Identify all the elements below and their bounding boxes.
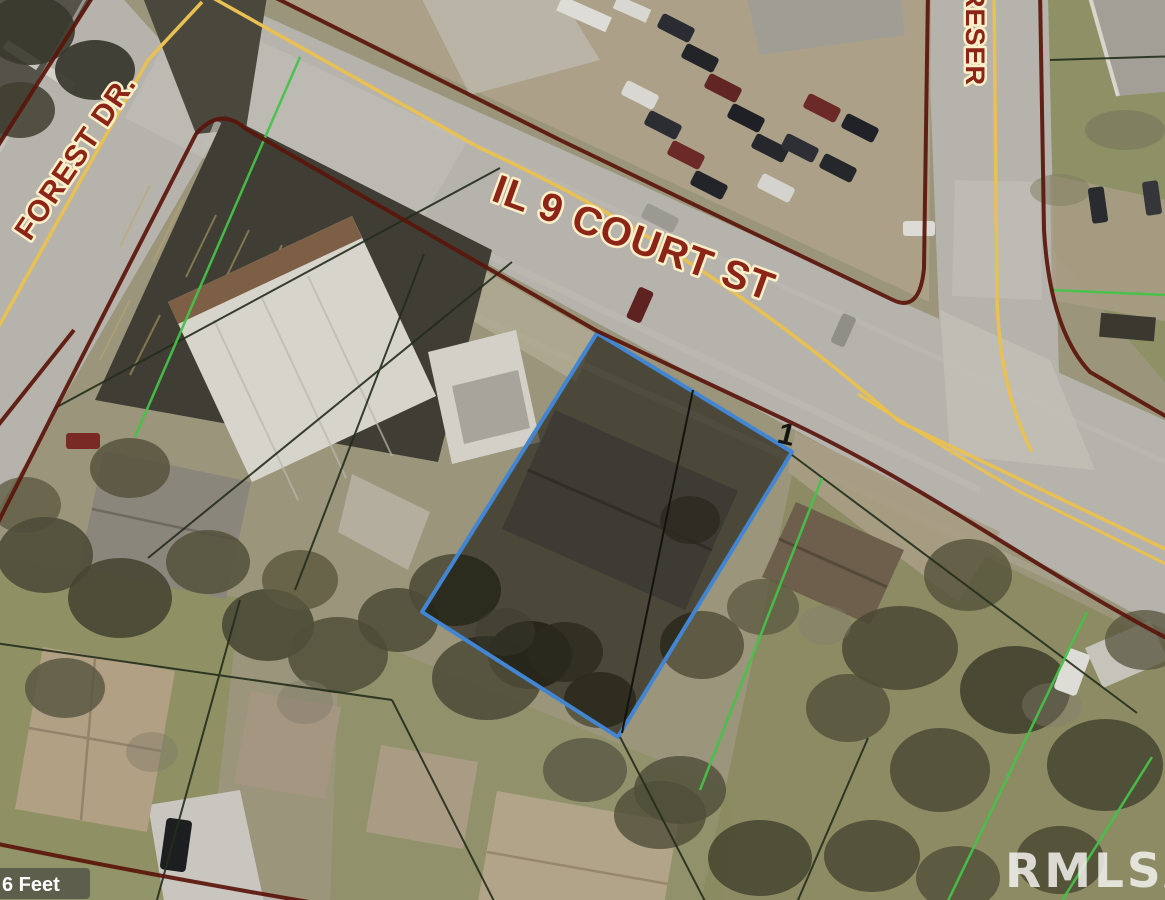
mls-watermark: RMLSA (1005, 844, 1165, 899)
aerial-map-view[interactable]: FOREST DR. IL 9 COURT ST RESER 1 6 Feet … (0, 0, 1165, 900)
scale-indicator: 6 Feet (0, 868, 90, 899)
car-red (66, 433, 100, 449)
dark-trailer (1099, 313, 1156, 342)
scale-indicator-text: 6 Feet (2, 874, 60, 896)
aerial-map-canvas: FOREST DR. IL 9 COURT ST RESER 1 6 Feet … (0, 0, 1165, 900)
street-label-reserve: RESER (960, 0, 990, 86)
